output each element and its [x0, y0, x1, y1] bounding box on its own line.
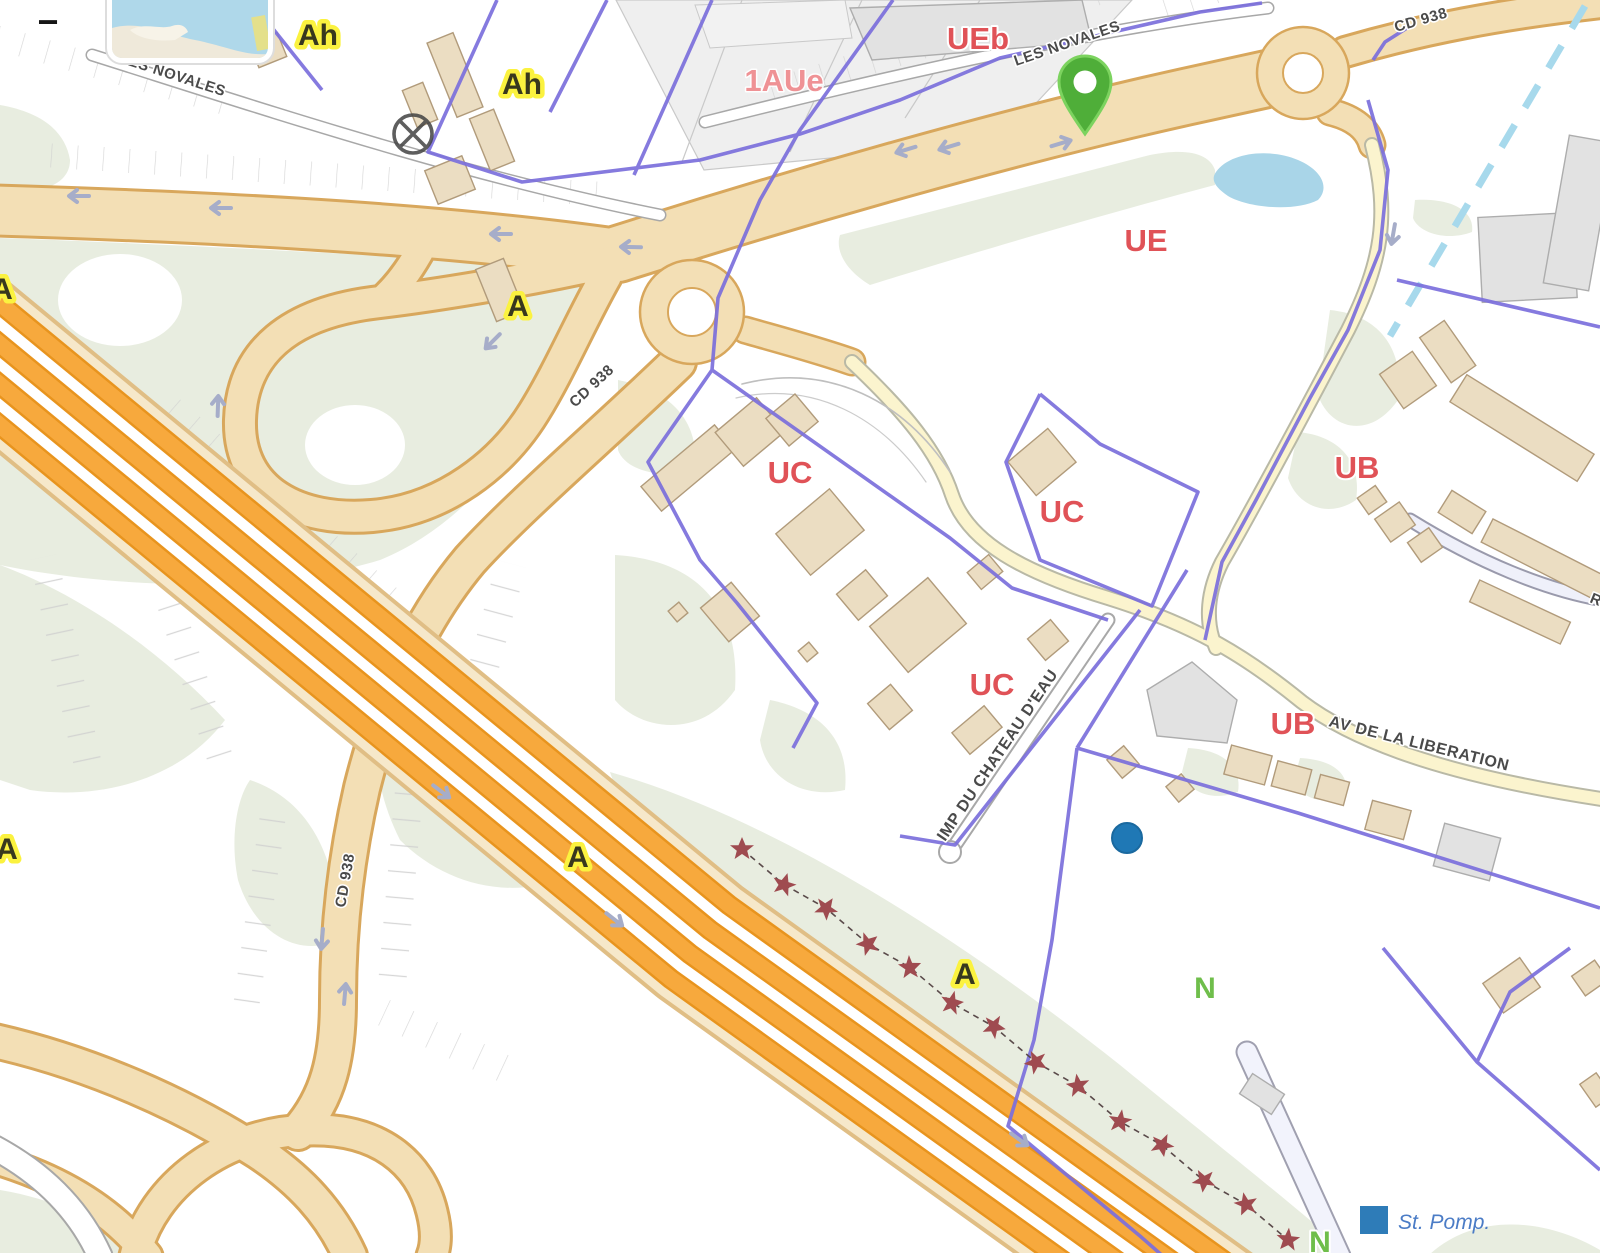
zone-label-a: A: [507, 290, 529, 323]
zone-label-n: N: [1194, 972, 1216, 1005]
zone-label-a: A: [567, 841, 589, 874]
zone-label-ah: Ah: [298, 19, 338, 52]
legend: St. Pomp.: [1360, 1206, 1490, 1234]
zone-label-ueb: UEb: [947, 21, 1009, 56]
zone-label-ah: Ah: [502, 68, 542, 101]
zone-label-ue: UE: [1124, 223, 1167, 258]
pond: [1214, 153, 1324, 207]
overview-minimap[interactable]: [106, 0, 274, 64]
zone-label-uc: UC: [768, 455, 813, 490]
map-canvas[interactable]: LES NOVALESLES NOVALESCD 938CD 938CD 938…: [0, 0, 1600, 1253]
zone-label-uc: UC: [970, 667, 1015, 702]
zone-label-a: A: [0, 273, 13, 306]
legend-label: St. Pomp.: [1398, 1211, 1490, 1234]
poi-dot[interactable]: [1112, 823, 1142, 853]
zone-label-ub: UB: [1271, 706, 1316, 741]
zone-label-1aue: 1AUe: [744, 63, 823, 98]
water-features: [1214, 153, 1324, 207]
zone-label-n: N: [1309, 1226, 1331, 1253]
map-viewport: { "app": { "type": "urban-zoning-web-map…: [0, 0, 1600, 1253]
zoom-out-button[interactable]: −: [30, 4, 66, 40]
well-symbol: [394, 115, 432, 153]
zone-label-a: A: [0, 833, 18, 866]
legend-swatch: [1360, 1206, 1388, 1234]
zone-label-ub: UB: [1335, 450, 1380, 485]
zone-label-a: A: [954, 958, 976, 991]
zone-label-uc: UC: [1040, 494, 1085, 529]
